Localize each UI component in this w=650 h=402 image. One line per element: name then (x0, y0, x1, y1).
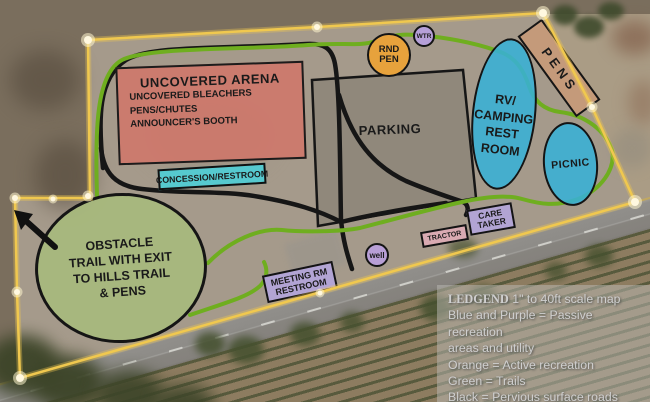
terrain-shading (10, 50, 80, 110)
terrain-shading (628, 80, 650, 125)
legend-line: Orange = Active recreation (448, 357, 650, 373)
rv-camping-area: RV/ CAMPING REST ROOM (464, 35, 544, 193)
concession-label: CONCESSION/RESTROOM (156, 168, 269, 185)
water-marker: WTR (413, 25, 435, 47)
legend-line: Black = Pervious surface roads (448, 389, 650, 402)
tree-canopy (598, 2, 624, 20)
legend-panel: LEDGEND 1" to 40ft scale map Blue and Pu… (437, 285, 650, 402)
well-label: well (369, 251, 384, 260)
legend-title-word: LEDGEND (448, 292, 509, 306)
legend-title: LEDGEND 1" to 40ft scale map (448, 291, 650, 307)
legend-title-rest: 1" to 40ft scale map (509, 292, 621, 306)
legend-line: Green = Trails (448, 373, 650, 389)
round-pen-label: PEN (379, 55, 399, 66)
tree-canopy (574, 16, 604, 38)
tree-canopy (552, 5, 578, 25)
concession-restroom-building: CONCESSION/RESTROOM (157, 163, 266, 191)
caretaker-label-line: TAKER (477, 217, 507, 231)
rv-label-line: ROOM (480, 139, 520, 159)
uncovered-arena-area: UNCOVERED ARENA UNCOVERED BLEACHERS PENS… (115, 61, 306, 166)
terrain-shading (612, 20, 650, 55)
pens-label: PENS (539, 44, 581, 94)
water-label: WTR (417, 33, 432, 40)
caretaker-building: CARE TAKER (466, 202, 516, 236)
tractor-label: TRACTOR (427, 230, 462, 243)
site-map: UNCOVERED ARENA UNCOVERED BLEACHERS PENS… (0, 0, 650, 402)
obstacle-label-line: & PENS (99, 282, 147, 301)
picnic-area: PICNIC (539, 120, 601, 208)
picnic-label: PICNIC (551, 156, 590, 171)
legend-line: areas and utility (448, 340, 650, 356)
road-path (339, 95, 468, 215)
legend-line: Blue and Purple = Passive recreation (448, 307, 650, 340)
well-marker: well (365, 243, 389, 267)
parking-area (312, 70, 476, 226)
round-pen-area: RND PEN (367, 33, 411, 77)
obstacle-trail-area: OBSTACLE TRAIL WITH EXIT TO HILLS TRAIL … (30, 187, 212, 349)
parking-label: PARKING (350, 121, 430, 139)
tractor-building: TRACTOR (420, 224, 469, 248)
road-path (341, 203, 446, 222)
terrain-shading (612, 128, 650, 168)
